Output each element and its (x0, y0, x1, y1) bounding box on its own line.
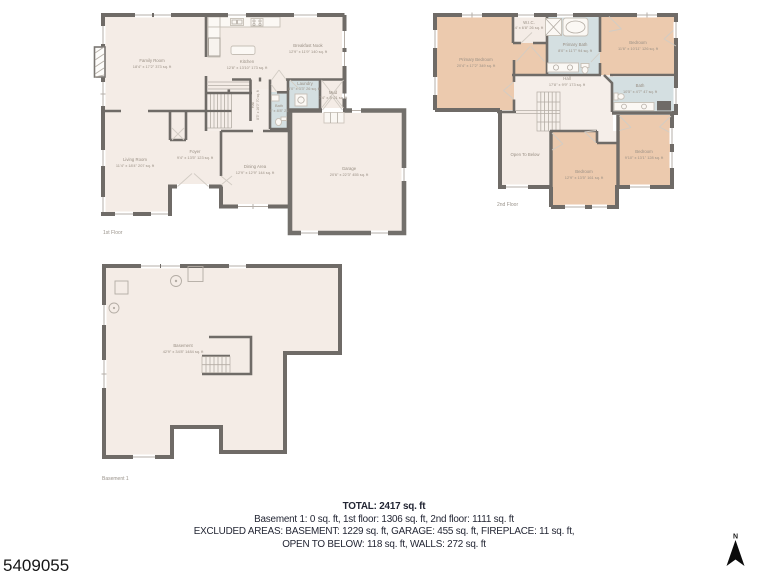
svg-text:Living Room: Living Room (123, 157, 147, 162)
svg-text:Open To Below: Open To Below (510, 152, 540, 157)
svg-text:Foyer: Foyer (190, 149, 202, 154)
svg-text:Basement 1: Basement 1 (102, 476, 129, 482)
svg-text:10'5" x 4'7" 47 sq. ft: 10'5" x 4'7" 47 sq. ft (623, 89, 658, 94)
svg-text:Bedroom: Bedroom (629, 40, 647, 45)
svg-text:4' x 6'8" 26 sq. ft: 4' x 6'8" 26 sq. ft (515, 25, 544, 30)
svg-text:12'9" x 12'9" 144 sq. ft: 12'9" x 12'9" 144 sq. ft (236, 170, 275, 175)
svg-text:8'3" x 16'0" 70 sq. ft: 8'3" x 16'0" 70 sq. ft (256, 90, 260, 120)
svg-text:Dining Area: Dining Area (244, 164, 267, 169)
svg-text:11'6" x 10'11" 126 sq. ft: 11'6" x 10'11" 126 sq. ft (618, 46, 659, 51)
svg-text:11'4" x 18'4" 207 sq. ft: 11'4" x 18'4" 207 sq. ft (116, 163, 155, 168)
svg-text:9'4" x 13'5" 123 sq. ft: 9'4" x 13'5" 123 sq. ft (177, 155, 214, 160)
svg-text:Breakfast Nook: Breakfast Nook (293, 43, 323, 48)
svg-text:Hall: Hall (251, 102, 255, 108)
svg-text:5' x 8'8" 21: 5' x 8'8" 21 (270, 108, 289, 113)
svg-text:12'9" x 11'9" 140 sq. ft: 12'9" x 11'9" 140 sq. ft (289, 49, 328, 54)
svg-text:20'4" x 17'2" 349 sq. ft: 20'4" x 17'2" 349 sq. ft (457, 63, 496, 68)
svg-text:Bedroom: Bedroom (635, 149, 653, 154)
svg-text:Family Room: Family Room (139, 58, 165, 63)
svg-text:Primary Bedroom: Primary Bedroom (459, 57, 493, 62)
svg-text:Bath: Bath (636, 83, 645, 88)
svg-text:42'9" x 34'8" 1484 sq. ft: 42'9" x 34'8" 1484 sq. ft (163, 349, 205, 354)
svg-text:2nd Floor: 2nd Floor (497, 202, 518, 208)
svg-text:8'0" x 11'7" 94 sq. ft: 8'0" x 11'7" 94 sq. ft (558, 48, 593, 53)
svg-text:1st Floor: 1st Floor (103, 230, 123, 236)
svg-text:12'9" x 13'5" 161 sq. ft: 12'9" x 13'5" 161 sq. ft (565, 175, 604, 180)
svg-text:Basement: Basement (173, 343, 193, 348)
svg-text:Kitchen: Kitchen (240, 59, 255, 64)
svg-text:7'4" x 3' 21 sq. ft: 7'4" x 3' 21 sq. ft (319, 95, 348, 100)
svg-text:17'8" x 9'9" 173 sq. ft: 17'8" x 9'9" 173 sq. ft (549, 82, 586, 87)
svg-text:Garage: Garage (342, 166, 357, 171)
svg-text:Primary Bath: Primary Bath (563, 42, 588, 47)
svg-text:12'8" x 13'10" 173 sq. ft: 12'8" x 13'10" 173 sq. ft (227, 65, 269, 70)
svg-text:8'0" x 3'3" 26 sq. ft: 8'0" x 3'3" 26 sq. ft (288, 86, 321, 91)
svg-text:18'4" x 17'2" 373 sq. ft: 18'4" x 17'2" 373 sq. ft (133, 64, 172, 69)
svg-text:Bedroom: Bedroom (575, 169, 593, 174)
svg-text:Hall: Hall (563, 76, 570, 81)
svg-text:20'6" x 22'3" 455 sq. ft: 20'6" x 22'3" 455 sq. ft (330, 172, 369, 177)
svg-text:9'10" x 13'1" 128 sq. ft: 9'10" x 13'1" 128 sq. ft (625, 155, 664, 160)
